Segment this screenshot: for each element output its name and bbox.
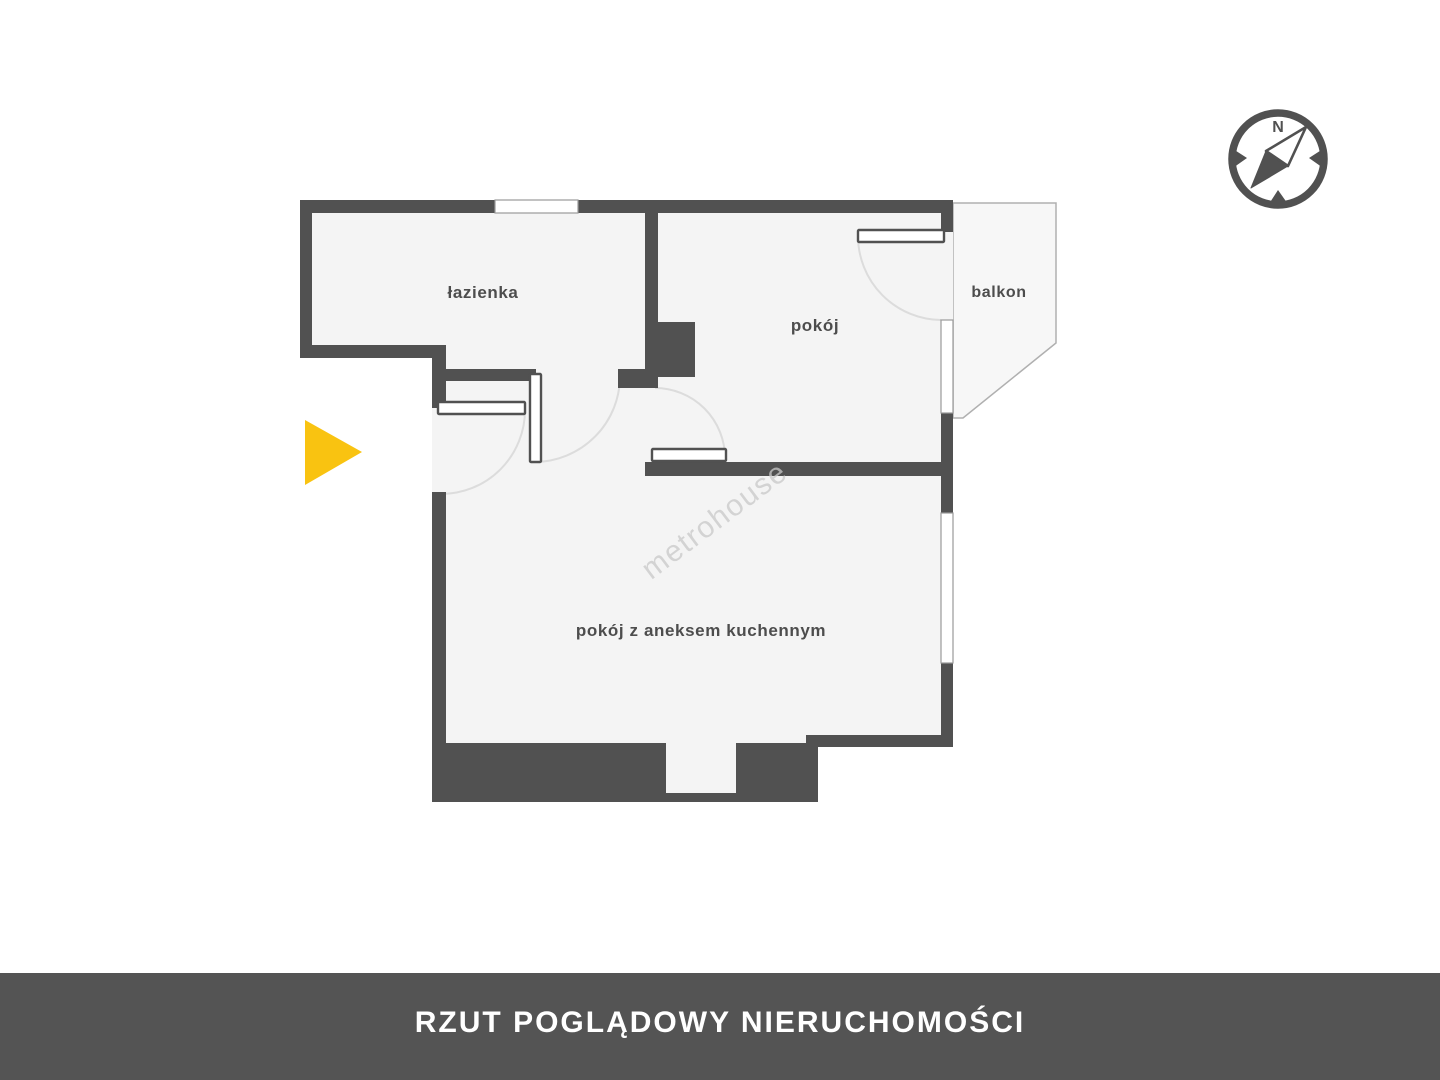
room-label-room: pokój [791, 316, 839, 335]
floor-plan-page: łazienka pokój balkon pokój z aneksem ku… [0, 0, 1440, 1080]
footer-banner: RZUT POGLĄDOWY NIERUCHOMOŚCI [0, 973, 1440, 1080]
wall-segment [300, 200, 953, 213]
wall-segment [645, 322, 695, 377]
window [941, 320, 953, 413]
room-door-leaf [652, 449, 726, 461]
wall-segment [941, 413, 953, 513]
compass-icon: N [1230, 113, 1326, 207]
entrance-door-leaf [438, 402, 525, 414]
wall-segment [432, 743, 818, 802]
compass-north-label: N [1272, 119, 1284, 136]
room-label-balcony: balkon [971, 284, 1026, 301]
entrance-arrow-icon [305, 420, 362, 485]
room-label-living-kitchen: pokój z aneksem kuchennym [576, 621, 826, 640]
wall-segment [618, 369, 647, 388]
wall-segment [444, 369, 536, 381]
room-label-bathroom: łazienka [448, 283, 519, 302]
window [495, 200, 578, 213]
bottom-wall-recess [666, 743, 736, 793]
balcony-door-leaf [858, 230, 944, 242]
balcony-area [953, 203, 1056, 418]
window [941, 513, 953, 663]
floor-plan-canvas: łazienka pokój balkon pokój z aneksem ku… [0, 0, 1440, 1080]
wall-segment [941, 200, 953, 232]
wall-segment [818, 735, 953, 747]
wall-segment [300, 345, 446, 358]
footer-banner-title: RZUT POGLĄDOWY NIERUCHOMOŚCI [415, 1006, 1025, 1040]
wall-segment [941, 663, 953, 747]
wall-segment [645, 462, 953, 476]
wall-segment [432, 345, 446, 408]
wall-segment [300, 200, 312, 358]
bathroom-door-leaf [530, 374, 541, 462]
apartment-floor [300, 200, 953, 802]
wall-segment [432, 492, 446, 802]
